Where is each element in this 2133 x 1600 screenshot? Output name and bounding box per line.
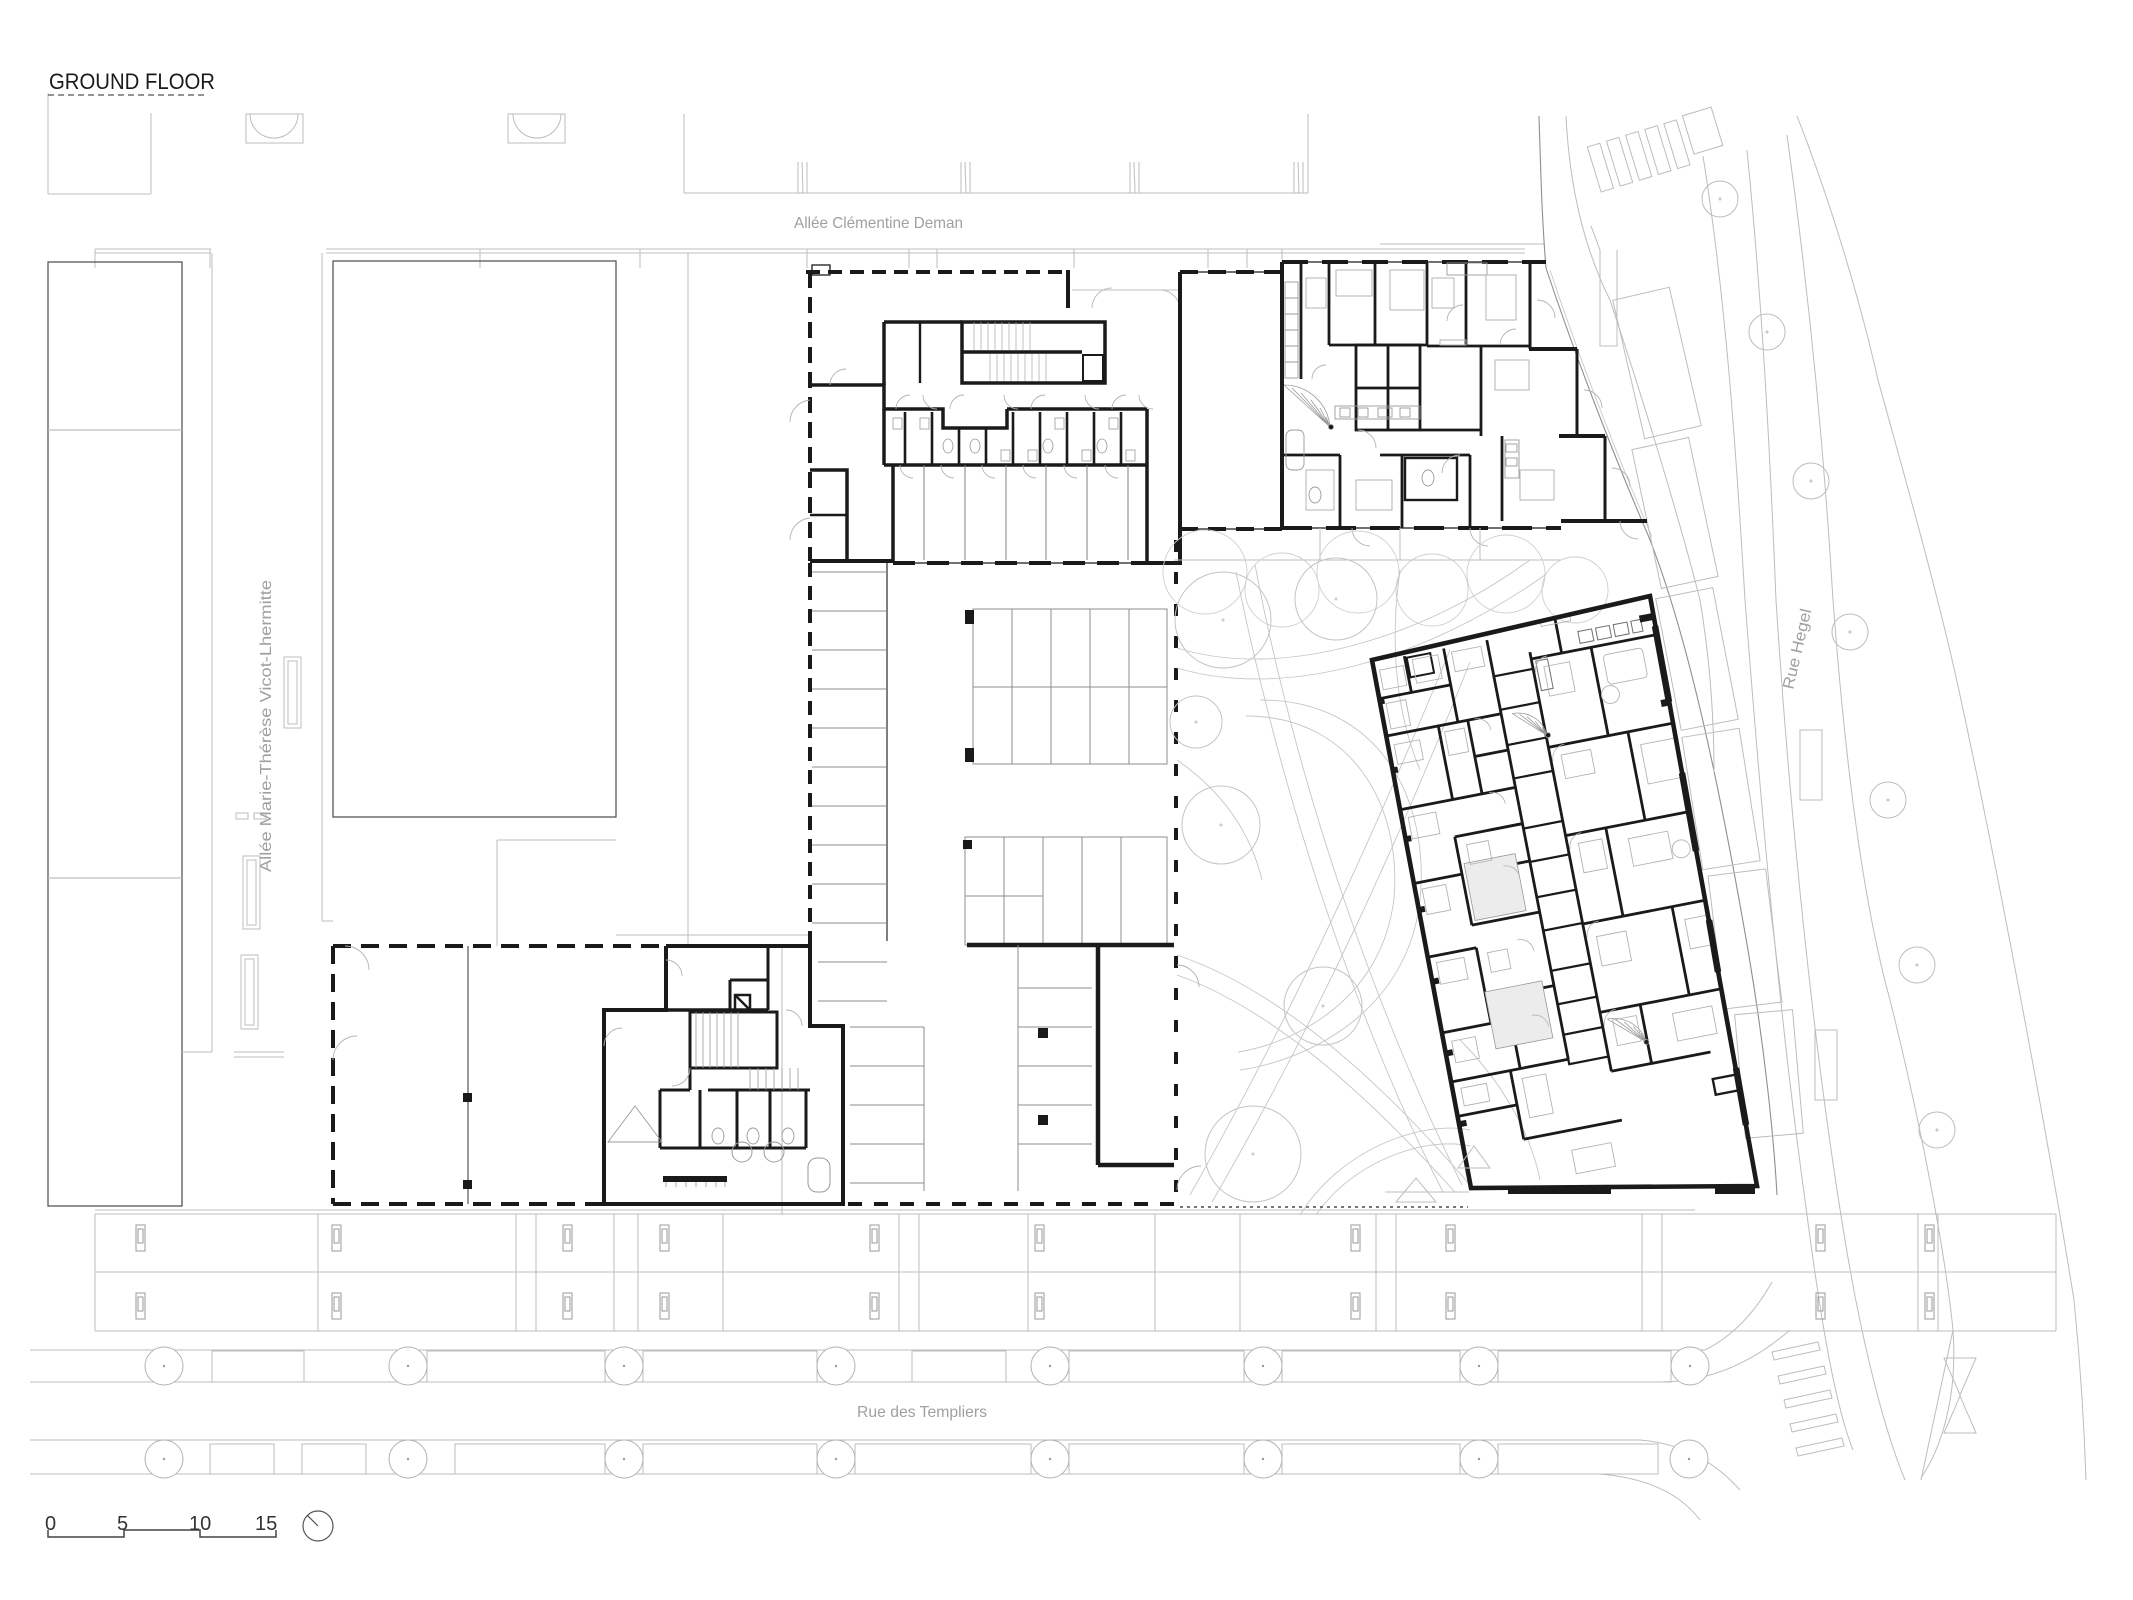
svg-text:5: 5 bbox=[117, 1513, 128, 1535]
svg-text:10: 10 bbox=[189, 1513, 211, 1535]
svg-text:GROUND FLOOR: GROUND FLOOR bbox=[49, 69, 215, 94]
svg-text:Rue des Templiers: Rue des Templiers bbox=[857, 1404, 987, 1421]
svg-text:Allée Marie-Thérèse Vicot-Lher: Allée Marie-Thérèse Vicot-Lhermitte bbox=[258, 580, 275, 872]
svg-text:Allée Clémentine Deman: Allée Clémentine Deman bbox=[794, 215, 963, 232]
svg-text:15: 15 bbox=[255, 1513, 277, 1535]
svg-text:0: 0 bbox=[45, 1513, 56, 1535]
